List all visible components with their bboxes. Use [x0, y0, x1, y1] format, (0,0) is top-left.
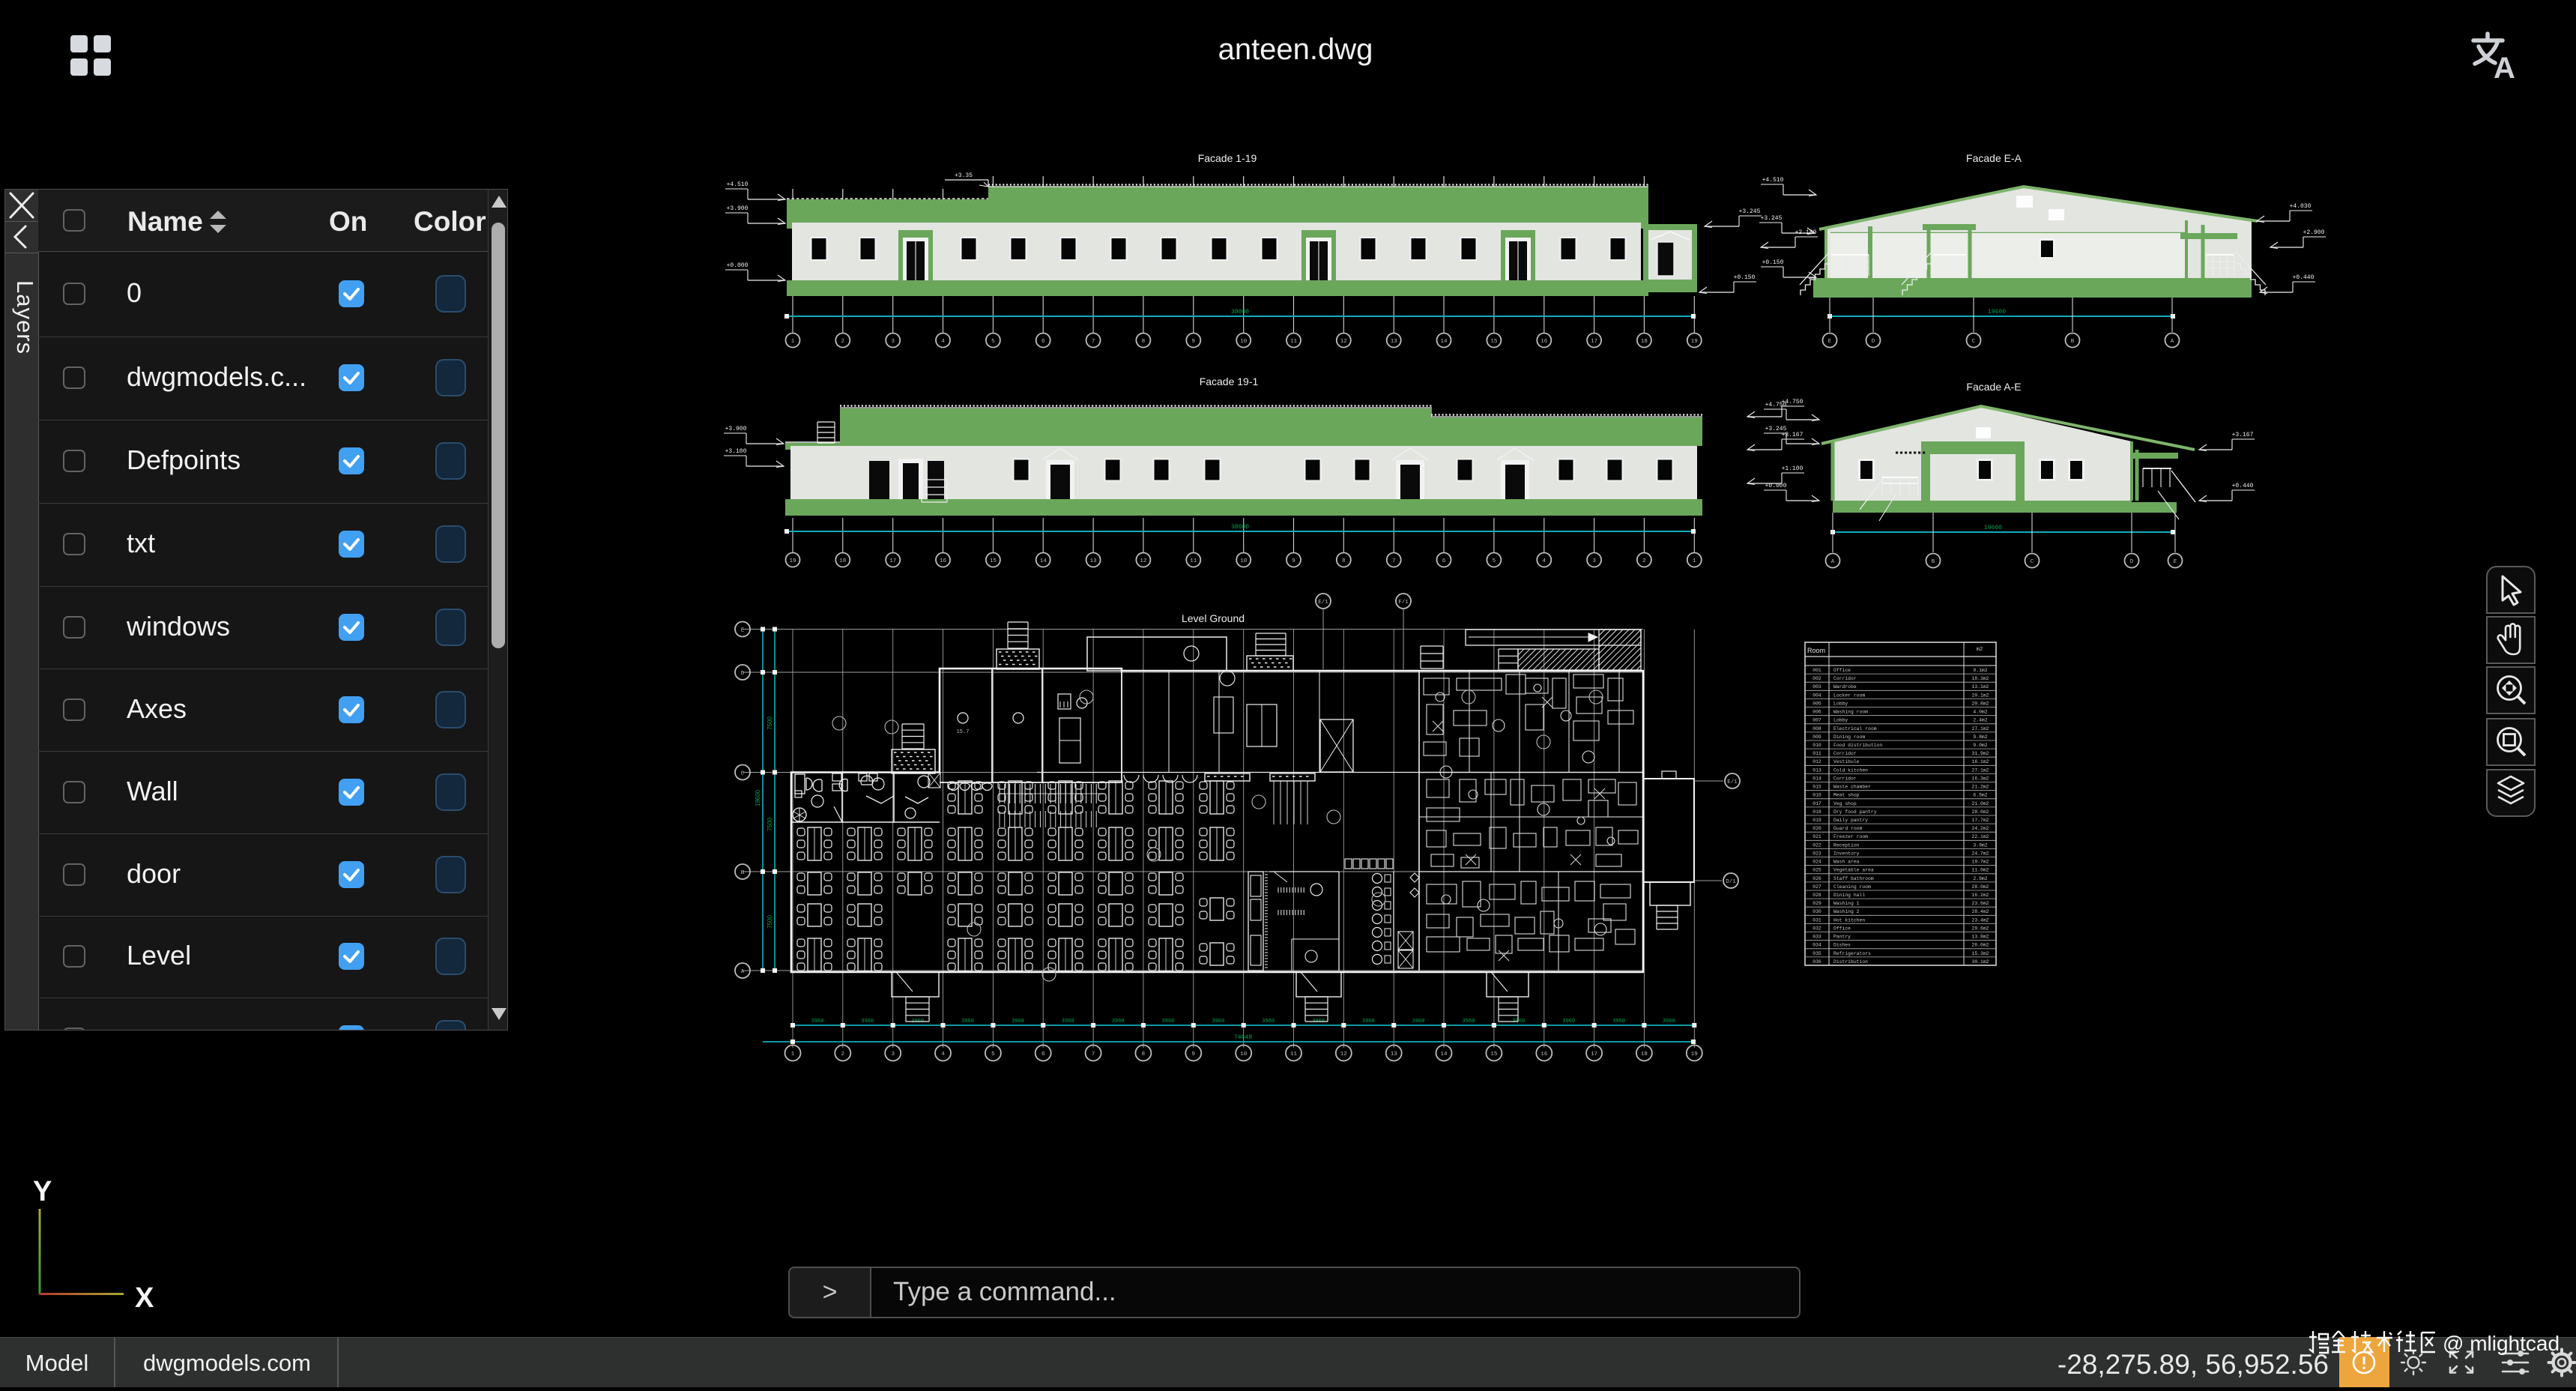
svg-text:036: 036: [1812, 959, 1821, 965]
svg-text:9: 9: [1192, 339, 1196, 345]
svg-text:13.8m2: 13.8m2: [1971, 935, 1989, 940]
svg-text:23.6m2: 23.6m2: [1971, 901, 1989, 906]
svg-text:+4.510: +4.510: [1762, 177, 1784, 184]
svg-text:8: 8: [1142, 339, 1146, 345]
svg-text:Wash area: Wash area: [1833, 860, 1860, 865]
svg-text:15: 15: [1490, 1051, 1498, 1057]
svg-text:+3.245: +3.245: [1739, 208, 1761, 215]
svg-text:21.2m2: 21.2m2: [1971, 785, 1989, 790]
svg-text:029: 029: [1812, 901, 1821, 906]
svg-text:C: C: [2031, 559, 2034, 565]
svg-text:Y: Y: [33, 1176, 52, 1207]
svg-text:007: 007: [1812, 718, 1821, 723]
svg-text:032: 032: [1812, 926, 1821, 931]
svg-text:10: 10: [1240, 558, 1248, 564]
svg-text:019: 019: [1812, 818, 1821, 823]
svg-text:17: 17: [889, 558, 896, 564]
svg-text:6: 6: [1041, 1051, 1045, 1057]
svg-text:1: 1: [791, 1051, 795, 1057]
svg-text:027: 027: [1812, 884, 1821, 890]
svg-text:Locker room: Locker room: [1833, 693, 1865, 698]
svg-text:7: 7: [1092, 1051, 1095, 1057]
svg-text:14: 14: [1440, 339, 1448, 345]
svg-text:4.0m2: 4.0m2: [1973, 710, 1987, 715]
svg-text:22.1m2: 22.1m2: [1971, 834, 1989, 839]
svg-text:018: 018: [1812, 809, 1821, 815]
svg-text:4: 4: [941, 339, 945, 345]
svg-text:022: 022: [1812, 842, 1821, 848]
svg-text:18: 18: [839, 558, 846, 564]
svg-text:004: 004: [1812, 693, 1821, 698]
svg-text:035: 035: [1812, 951, 1821, 956]
svg-text:+0.440: +0.440: [2293, 274, 2315, 281]
svg-text:2: 2: [841, 339, 845, 345]
svg-text:Facade 1-19: Facade 1-19: [1198, 152, 1257, 164]
svg-text:+0.000: +0.000: [727, 262, 749, 269]
svg-text:Level Ground: Level Ground: [1182, 612, 1245, 624]
svg-text:m2: m2: [1977, 647, 1983, 653]
svg-text:025: 025: [1812, 868, 1821, 873]
svg-text:21.0m2: 21.0m2: [1971, 801, 1989, 806]
svg-text:E: E: [1828, 339, 1832, 345]
svg-text:E/1: E/1: [1727, 779, 1738, 785]
svg-text:011: 011: [1812, 751, 1821, 756]
svg-text:Hot kitchen: Hot kitchen: [1833, 917, 1865, 923]
svg-text:11.0m2: 11.0m2: [1971, 868, 1989, 873]
svg-text:5: 5: [991, 339, 995, 345]
svg-text:19600: 19600: [1984, 525, 2002, 531]
svg-text:13: 13: [1391, 1051, 1398, 1057]
svg-text:Cleaning room: Cleaning room: [1833, 884, 1871, 890]
svg-text:010: 010: [1812, 743, 1821, 748]
svg-text:Veg shop: Veg shop: [1833, 801, 1857, 806]
svg-text:3: 3: [891, 339, 895, 345]
svg-text:B: B: [2071, 339, 2075, 345]
svg-text:A: A: [1831, 559, 1835, 565]
svg-text:030: 030: [1812, 909, 1821, 914]
svg-text:18: 18: [1641, 339, 1648, 345]
svg-text:2.4m2: 2.4m2: [1973, 718, 1987, 723]
svg-text:24.2m2: 24.2m2: [1971, 826, 1989, 831]
svg-text:Facade A-E: Facade A-E: [1966, 381, 2021, 393]
svg-text:Office: Office: [1833, 926, 1851, 931]
svg-text:3960: 3960: [1612, 1019, 1625, 1025]
svg-text:009: 009: [1812, 734, 1821, 740]
svg-text:E: E: [741, 627, 745, 633]
svg-text:6.5m2: 6.5m2: [1973, 793, 1987, 798]
svg-text:Freezer room: Freezer room: [1833, 834, 1868, 839]
svg-text:+0.150: +0.150: [1762, 259, 1784, 266]
svg-text:28.0m2: 28.0m2: [1971, 809, 1989, 815]
svg-text:+4.030: +4.030: [2290, 203, 2312, 210]
svg-text:15: 15: [1490, 339, 1498, 345]
svg-text:10: 10: [1240, 1051, 1248, 1057]
svg-text:11: 11: [1290, 339, 1298, 345]
svg-text:10: 10: [1240, 339, 1248, 345]
svg-text:6: 6: [1041, 339, 1045, 345]
svg-text:16: 16: [1541, 1051, 1548, 1057]
svg-text:Washing room: Washing room: [1833, 710, 1868, 715]
svg-text:015: 015: [1812, 785, 1821, 790]
svg-text:20.1m2: 20.1m2: [1971, 693, 1989, 698]
svg-text:3.9m2: 3.9m2: [1973, 842, 1987, 848]
svg-text:Staff bathroom: Staff bathroom: [1833, 876, 1874, 881]
svg-text:B: B: [1932, 559, 1935, 565]
svg-text:3960: 3960: [961, 1019, 974, 1025]
svg-text:19.7m2: 19.7m2: [1971, 860, 1989, 865]
svg-text:13: 13: [1391, 339, 1398, 345]
svg-text:Vestibule: Vestibule: [1833, 759, 1860, 764]
svg-text:12: 12: [1340, 339, 1347, 345]
svg-text:19600: 19600: [755, 789, 761, 806]
svg-text:Washing 2: Washing 2: [1833, 909, 1860, 914]
svg-text:+2.900: +2.900: [2303, 229, 2325, 236]
svg-text:5: 5: [1493, 558, 1496, 564]
svg-text:9.1m2: 9.1m2: [1973, 668, 1987, 673]
svg-text:Cold kitchen: Cold kitchen: [1833, 767, 1868, 773]
svg-text:Office: Office: [1833, 668, 1851, 673]
svg-text:3960: 3960: [1062, 1019, 1074, 1025]
svg-text:3960: 3960: [1161, 1019, 1174, 1025]
svg-text:9.0m2: 9.0m2: [1973, 743, 1987, 748]
svg-text:17: 17: [1591, 339, 1597, 345]
svg-text:17.7m2: 17.7m2: [1971, 818, 1989, 823]
svg-text:16.1m2: 16.1m2: [1971, 759, 1989, 764]
svg-text:3960: 3960: [1412, 1019, 1425, 1025]
svg-text:19: 19: [1691, 339, 1698, 345]
svg-text:014: 014: [1812, 776, 1821, 781]
svg-text:Vegetable area: Vegetable area: [1833, 868, 1874, 873]
svg-text:008: 008: [1812, 726, 1821, 731]
svg-text:3: 3: [1592, 558, 1596, 564]
svg-text:6: 6: [1442, 558, 1446, 564]
svg-text:+0.000: +0.000: [1765, 483, 1787, 489]
svg-text:012: 012: [1812, 759, 1821, 764]
svg-text:18.3m2: 18.3m2: [1971, 676, 1989, 681]
svg-text:18: 18: [1641, 1051, 1648, 1057]
svg-text:7500: 7500: [767, 915, 773, 929]
svg-text:24.7m2: 24.7m2: [1971, 851, 1989, 856]
svg-text:Lobby: Lobby: [1833, 701, 1848, 706]
svg-text:D: D: [2130, 559, 2134, 565]
svg-text:8: 8: [1342, 558, 1346, 564]
svg-text:19: 19: [789, 558, 796, 564]
svg-text:033: 033: [1812, 935, 1821, 940]
svg-text:+4.510: +4.510: [727, 181, 749, 188]
svg-text:Food distribution: Food distribution: [1833, 743, 1882, 748]
svg-text:3960: 3960: [811, 1019, 824, 1025]
svg-text:Distribution: Distribution: [1833, 959, 1868, 965]
svg-text:001: 001: [1812, 668, 1821, 673]
svg-text:+3.167: +3.167: [1782, 432, 1803, 438]
svg-text:17: 17: [1591, 1051, 1597, 1057]
svg-text:A: A: [2171, 339, 2174, 345]
svg-text:020: 020: [1812, 826, 1821, 831]
svg-text:B: B: [741, 870, 745, 876]
svg-text:13.1m2: 13.1m2: [1971, 684, 1989, 690]
svg-text:28.0m2: 28.0m2: [1971, 884, 1989, 890]
svg-text:30.1m2: 30.1m2: [1971, 959, 1989, 965]
svg-text:D/1: D/1: [1726, 879, 1736, 885]
svg-text:12: 12: [1340, 1051, 1347, 1057]
svg-text:Dishes: Dishes: [1833, 943, 1851, 948]
svg-text:3: 3: [891, 1051, 895, 1057]
svg-text:Facade 19-1: Facade 19-1: [1200, 375, 1259, 387]
svg-text:024: 024: [1812, 860, 1821, 865]
svg-text:3960: 3960: [1562, 1019, 1575, 1025]
svg-text:E/1: E/1: [1318, 600, 1328, 606]
svg-text:3960: 3960: [1463, 1019, 1475, 1025]
svg-text:23.4m2: 23.4m2: [1971, 917, 1989, 923]
svg-text:7500: 7500: [767, 818, 773, 831]
svg-text:031: 031: [1812, 917, 1821, 923]
svg-text:Refrigerators: Refrigerators: [1833, 951, 1871, 956]
svg-text:017: 017: [1812, 801, 1821, 806]
svg-text:38000: 38000: [1231, 309, 1249, 316]
svg-text:4: 4: [1543, 558, 1546, 564]
svg-text:X: X: [135, 1282, 154, 1314]
svg-text:D: D: [741, 671, 745, 677]
svg-text:27.1m2: 27.1m2: [1971, 767, 1989, 773]
svg-text:7500: 7500: [767, 716, 773, 730]
svg-text:15: 15: [990, 558, 997, 564]
svg-text:15.3m2: 15.3m2: [1971, 951, 1989, 956]
svg-text:A: A: [2494, 52, 2515, 82]
svg-text:+3.35: +3.35: [955, 172, 973, 179]
svg-text:002: 002: [1812, 676, 1821, 681]
svg-text:Corridor: Corridor: [1833, 751, 1857, 756]
svg-text:Room: Room: [1807, 647, 1825, 654]
svg-text:14: 14: [1040, 558, 1047, 564]
svg-text:+3.245: +3.245: [1765, 426, 1787, 432]
svg-text:3960: 3960: [1112, 1019, 1125, 1025]
svg-text:+3.245: +3.245: [1761, 215, 1783, 222]
svg-text:+1.100: +1.100: [1782, 465, 1803, 472]
svg-text:3960: 3960: [1362, 1019, 1375, 1025]
svg-text:Electrical room: Electrical room: [1833, 726, 1877, 731]
svg-text:+3.900: +3.900: [725, 426, 747, 432]
svg-text:74648: 74648: [1234, 1034, 1252, 1041]
svg-text:8: 8: [1142, 1051, 1146, 1057]
svg-text:Washing 1: Washing 1: [1833, 901, 1860, 906]
svg-text:Meat shop: Meat shop: [1833, 793, 1860, 798]
svg-text:Guard room: Guard room: [1833, 826, 1863, 831]
svg-text:15.7: 15.7: [957, 729, 970, 735]
svg-text:Dry food pantry: Dry food pantry: [1833, 809, 1877, 815]
svg-text:13: 13: [1090, 558, 1098, 564]
svg-text:11: 11: [1290, 1051, 1298, 1057]
svg-text:5: 5: [991, 1051, 995, 1057]
svg-text:27.1m2: 27.1m2: [1971, 726, 1989, 731]
svg-text:Waste chamber: Waste chamber: [1833, 785, 1871, 790]
svg-text:20.8m2: 20.8m2: [1971, 701, 1989, 706]
svg-text:D: D: [1872, 339, 1875, 345]
svg-text:013: 013: [1812, 767, 1821, 773]
svg-text:29.6m2: 29.6m2: [1971, 926, 1989, 931]
svg-text:Lobby: Lobby: [1833, 718, 1848, 723]
svg-text:9: 9: [1292, 558, 1295, 564]
svg-text:+0.440: +0.440: [2232, 483, 2254, 489]
svg-text:16: 16: [940, 558, 947, 564]
svg-text:Reception: Reception: [1833, 842, 1860, 848]
svg-text:003: 003: [1812, 684, 1821, 690]
svg-text:3960: 3960: [1012, 1019, 1024, 1025]
svg-text:26.0m2: 26.0m2: [1971, 943, 1989, 948]
svg-text:3960: 3960: [1212, 1019, 1224, 1025]
svg-text:028: 028: [1812, 893, 1821, 898]
svg-text:C: C: [1972, 339, 1976, 345]
svg-text:16.2m2: 16.2m2: [1971, 893, 1989, 898]
svg-text:C: C: [741, 770, 745, 776]
svg-text:Corridor: Corridor: [1833, 676, 1857, 681]
svg-text:16.3m2: 16.3m2: [1971, 776, 1989, 781]
svg-text:+4.750: +4.750: [1765, 402, 1787, 408]
svg-text:023: 023: [1812, 851, 1821, 856]
svg-text:9.8m2: 9.8m2: [1973, 734, 1987, 740]
svg-text:19: 19: [1691, 1051, 1698, 1057]
svg-text:7: 7: [1392, 558, 1396, 564]
svg-text:016: 016: [1812, 793, 1821, 798]
svg-text:F/1: F/1: [1398, 600, 1409, 606]
svg-text:12: 12: [1140, 558, 1146, 564]
svg-text:005: 005: [1812, 701, 1821, 706]
svg-text:16: 16: [1541, 339, 1548, 345]
svg-text:14: 14: [1440, 1051, 1448, 1057]
svg-text:3960: 3960: [1262, 1019, 1275, 1025]
svg-text:+0.150: +0.150: [1734, 274, 1756, 281]
svg-text:A: A: [741, 969, 745, 975]
svg-text:Wardrobe: Wardrobe: [1833, 684, 1857, 690]
svg-text:19600: 19600: [1988, 309, 2006, 316]
svg-text:1: 1: [791, 339, 795, 345]
svg-text:2.9m2: 2.9m2: [1973, 876, 1987, 881]
svg-text:7: 7: [1092, 339, 1095, 345]
svg-text:Dining hall: Dining hall: [1833, 893, 1865, 898]
svg-text:006: 006: [1812, 710, 1821, 715]
svg-text:4: 4: [941, 1051, 945, 1057]
svg-text:2: 2: [841, 1051, 845, 1057]
svg-text:+3.900: +3.900: [727, 205, 749, 212]
svg-text:31.9m2: 31.9m2: [1971, 751, 1989, 756]
svg-text:Corridor: Corridor: [1833, 776, 1857, 781]
svg-text:1: 1: [1693, 558, 1696, 564]
svg-text:Inventory: Inventory: [1833, 851, 1860, 856]
svg-text:026: 026: [1812, 876, 1821, 881]
svg-text:Daily pantry: Daily pantry: [1833, 818, 1868, 823]
svg-text:Facade E-A: Facade E-A: [1966, 152, 2022, 164]
svg-text:021: 021: [1812, 834, 1821, 839]
svg-text:28.4m2: 28.4m2: [1971, 909, 1989, 914]
svg-text:2: 2: [1642, 558, 1646, 564]
svg-text:E: E: [2174, 559, 2177, 565]
svg-text:034: 034: [1812, 943, 1821, 948]
svg-text:11: 11: [1190, 558, 1197, 564]
svg-text:Dining room: Dining room: [1833, 734, 1865, 740]
svg-text:9: 9: [1192, 1051, 1196, 1057]
svg-text:3960: 3960: [861, 1019, 874, 1025]
svg-text:38000: 38000: [1231, 524, 1249, 531]
svg-text:+3.167: +3.167: [2232, 432, 2254, 438]
svg-text:+3.100: +3.100: [725, 448, 747, 455]
svg-text:3960: 3960: [1663, 1019, 1675, 1025]
svg-text:@ mlightcad: @ mlightcad: [2443, 1332, 2560, 1355]
svg-text:Pantry: Pantry: [1833, 935, 1851, 940]
